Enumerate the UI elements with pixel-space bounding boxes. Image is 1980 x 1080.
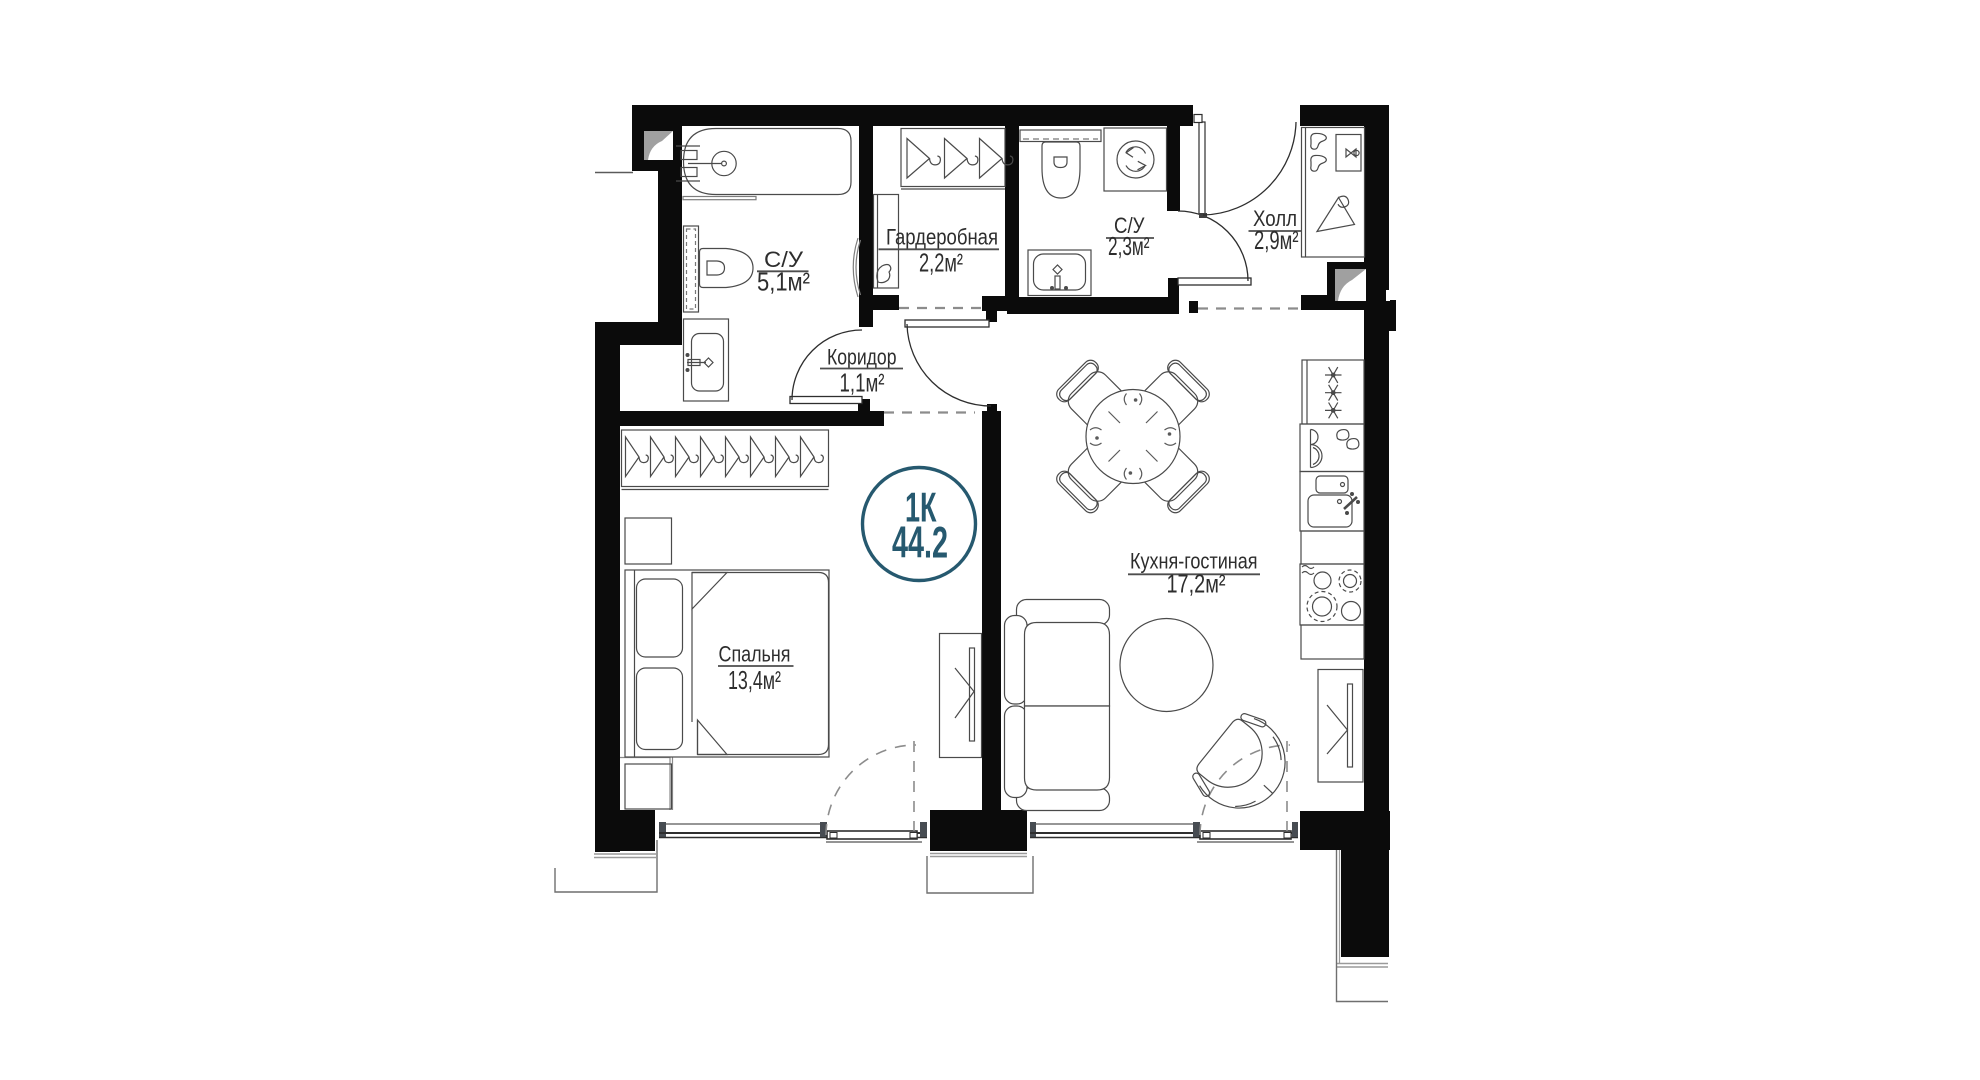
svg-text:17,2м²: 17,2м² [1167,569,1226,599]
svg-text:5,1м²: 5,1м² [757,267,810,297]
svg-text:Гардеробная: Гардеробная [886,225,998,250]
svg-text:Спальня: Спальня [719,642,791,667]
svg-text:Коридор: Коридор [827,345,897,370]
svg-text:13,4м²: 13,4м² [728,665,781,695]
svg-text:1,1м²: 1,1м² [840,368,885,398]
svg-text:44.2: 44.2 [892,519,948,568]
svg-text:2,3м²: 2,3м² [1108,231,1150,261]
svg-text:2,9м²: 2,9м² [1254,225,1299,255]
svg-text:2,2м²: 2,2м² [919,248,963,278]
